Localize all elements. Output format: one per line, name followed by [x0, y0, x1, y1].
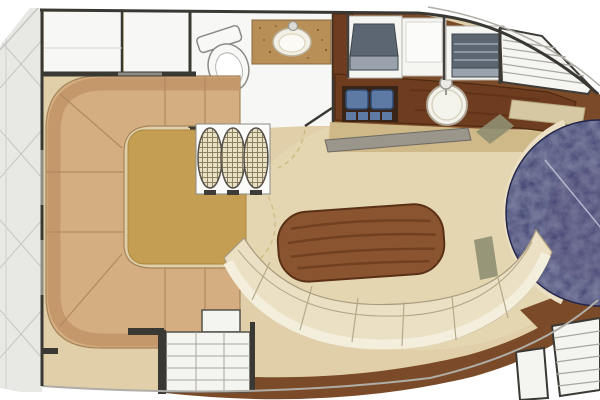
wicker-chair-3 [244, 128, 268, 188]
vanity-faucet [289, 22, 298, 31]
steps-landing [202, 310, 240, 332]
side-steps-panel [516, 348, 548, 400]
stove-burner-1 [346, 90, 368, 109]
aft-wall-stub [42, 348, 58, 354]
steps-wall-stub [128, 328, 164, 335]
steps-right-wall [250, 322, 255, 392]
steps-body [166, 332, 250, 392]
chair-feet [204, 190, 262, 195]
forward-cabins [44, 12, 190, 72]
refrigerator [350, 24, 398, 56]
stove-burner-2 [371, 90, 393, 109]
wicker-chair-1 [198, 128, 222, 188]
vanity-sink-basin [279, 34, 305, 52]
floorplan-image [0, 0, 600, 400]
wicker-chair-2 [221, 128, 245, 188]
forward-cabin-right [124, 12, 190, 72]
appliance [452, 34, 500, 68]
side-deck [0, 0, 42, 400]
cabinet-2-door [406, 22, 442, 62]
appliance-vent [452, 68, 500, 77]
steps-left-wall [158, 330, 166, 394]
stowed-wicker-chairs [196, 124, 270, 195]
forward-cabin-left [44, 12, 122, 72]
floorplan-svg [0, 0, 600, 400]
refrigerator-front [350, 56, 398, 70]
table-top [276, 202, 446, 283]
saloon-table [276, 202, 446, 283]
